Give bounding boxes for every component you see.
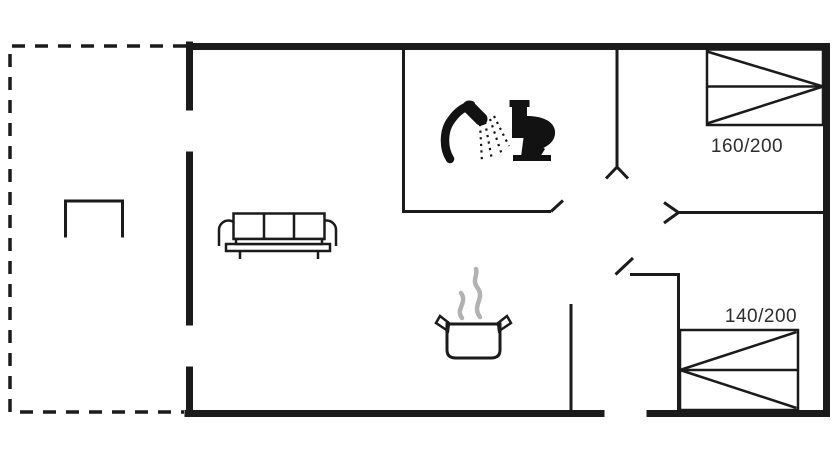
terrace-table-icon xyxy=(66,201,123,238)
terrace-dashed-outline xyxy=(10,46,186,412)
steam-icon-left xyxy=(460,293,463,318)
shower-icon xyxy=(445,105,509,162)
bedroom1-door-arrow-icon xyxy=(664,203,679,224)
bathroom-door-swing-icon xyxy=(551,201,563,212)
shower-spray xyxy=(480,116,509,162)
sofa-icon xyxy=(219,214,336,260)
double-bed-160-icon: 160/200 xyxy=(707,50,823,158)
bed-140-label: 140/200 xyxy=(725,306,797,327)
bedroom2-door-swing-icon xyxy=(616,258,634,275)
toilet-base-plate xyxy=(513,155,551,161)
bed-160-label: 160/200 xyxy=(711,136,783,157)
steam-icon-right xyxy=(475,269,480,317)
shower-head xyxy=(469,107,481,119)
double-bed-140-icon: 140/200 xyxy=(680,306,798,410)
sofa-seat-band xyxy=(236,239,322,244)
floor-plan-canvas: 160/200 140/200 xyxy=(0,0,834,460)
cooking-pot-icon xyxy=(436,269,511,358)
sofa-backrest xyxy=(234,214,325,240)
toilet-icon xyxy=(510,100,556,161)
floor-plan: 160/200 140/200 xyxy=(0,0,834,460)
hallway-door-arrow-icon xyxy=(606,167,628,179)
toilet-tank xyxy=(512,105,527,138)
pot-body xyxy=(447,324,500,358)
